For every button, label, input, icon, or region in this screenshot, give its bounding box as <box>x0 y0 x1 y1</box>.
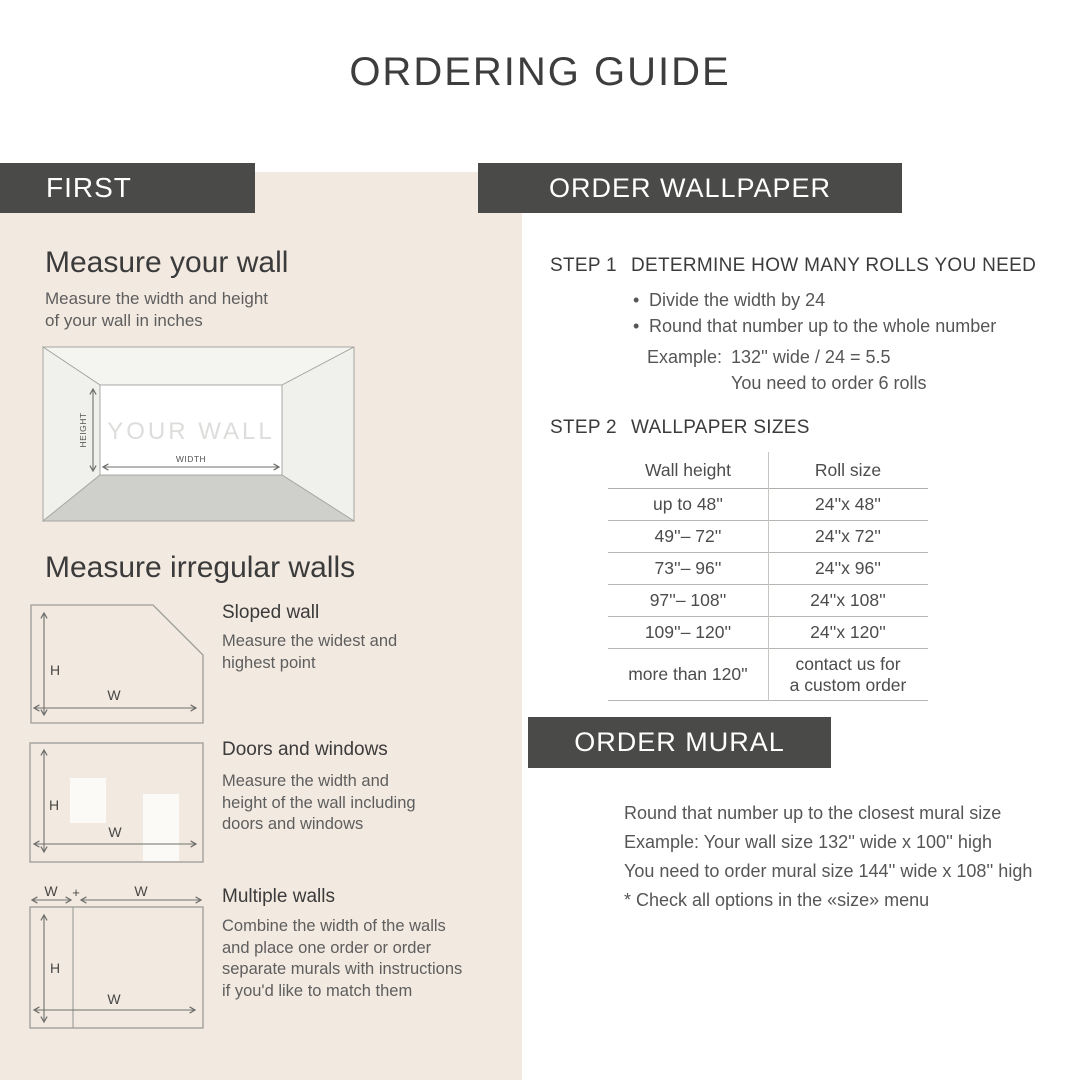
mural-line: * Check all options in the «size» menu <box>624 886 1032 915</box>
order-wallpaper-label: ORDER WALLPAPER <box>549 173 831 204</box>
multiple-walls-body: Combine the width of the walls and place… <box>222 916 462 1002</box>
first-section-header: FIRST <box>0 163 255 213</box>
step1-row: STEP 1 DETERMINE HOW MANY ROLLS YOU NEED <box>550 255 1036 277</box>
bullet-text: Divide the width by 24 <box>649 290 825 310</box>
roll-size-cell: 24''x 108'' <box>768 585 928 616</box>
irregular-walls-heading: Measure irregular walls <box>45 551 355 585</box>
doors-windows-diagram: H W <box>28 740 206 864</box>
wall-height-cell: up to 48'' <box>608 489 768 520</box>
w-label: W <box>108 824 122 840</box>
plus-sign: + <box>72 885 80 900</box>
roll-size-cell: 24''x 72'' <box>768 521 928 552</box>
wall-height-cell: more than 120'' <box>608 649 768 700</box>
measure-wall-heading: Measure your wall <box>45 246 288 280</box>
h-label: H <box>49 797 59 813</box>
wall-height-cell: 109''– 120'' <box>608 617 768 648</box>
column-header: Roll size <box>768 452 928 488</box>
page-title: ORDERING GUIDE <box>0 50 1080 95</box>
step2-title: WALLPAPER SIZES <box>631 417 810 439</box>
roll-size-cell: contact us for a custom order <box>768 649 928 700</box>
wall-height-cell: 49''– 72'' <box>608 521 768 552</box>
wall-diagram: YOUR WALL HEIGHT WIDTH <box>42 346 355 522</box>
sloped-wall-body: Measure the widest and highest point <box>222 631 397 674</box>
w-label-small: W <box>44 883 58 899</box>
example-label: Example: <box>647 344 731 396</box>
w-label: W <box>107 687 121 703</box>
sloped-wall-diagram: H W <box>28 602 208 728</box>
doors-windows-title: Doors and windows <box>222 739 388 761</box>
your-wall-label: YOUR WALL <box>107 418 274 445</box>
roll-size-cell: 24''x 96'' <box>768 553 928 584</box>
example-line2: You need to order 6 rolls <box>731 370 926 396</box>
step2-row: STEP 2 WALLPAPER SIZES <box>550 417 810 439</box>
doors-windows-body: Measure the width and height of the wall… <box>222 771 416 836</box>
h-label: H <box>50 662 60 678</box>
h-label: H <box>50 960 60 976</box>
mural-line: Round that number up to the closest mura… <box>624 799 1032 828</box>
step1-example: Example: 132'' wide / 24 = 5.5 You need … <box>647 344 926 396</box>
mural-line: You need to order mural size 144'' wide … <box>624 857 1032 886</box>
roll-size-cell: 24''x 120'' <box>768 617 928 648</box>
step2-label: STEP 2 <box>550 417 631 439</box>
ordering-guide-page: ORDERING GUIDE FIRST Measure your wall M… <box>0 0 1080 1080</box>
wallpaper-sizes-table: Wall height Roll size up to 48'' 24''x 4… <box>608 452 928 701</box>
bullet-text: Round that number up to the whole number <box>649 316 996 336</box>
step1-bullets: •Divide the width by 24 •Round that numb… <box>633 287 996 339</box>
column-header: Wall height <box>608 452 768 488</box>
wall-height-cell: 73''– 96'' <box>608 553 768 584</box>
width-label: WIDTH <box>176 454 206 464</box>
bullet-line: •Round that number up to the whole numbe… <box>633 313 996 339</box>
bullet-line: •Divide the width by 24 <box>633 287 996 313</box>
w-label-bottom: W <box>107 991 121 1007</box>
window-shape <box>70 778 106 823</box>
height-label: HEIGHT <box>78 412 88 447</box>
roll-size-cell: 24''x 48'' <box>768 489 928 520</box>
table-column-divider <box>768 452 769 701</box>
order-wallpaper-header: ORDER WALLPAPER <box>478 163 902 213</box>
example-line1: 132'' wide / 24 = 5.5 <box>731 344 926 370</box>
mural-line: Example: Your wall size 132'' wide x 100… <box>624 828 1032 857</box>
door-shape <box>143 794 179 861</box>
bullet-icon: • <box>633 313 649 339</box>
w-label-large: W <box>134 883 148 899</box>
step1-label: STEP 1 <box>550 255 631 277</box>
step1-title: DETERMINE HOW MANY ROLLS YOU NEED <box>631 255 1036 277</box>
wall-height-cell: 97''– 108'' <box>608 585 768 616</box>
first-section-label: FIRST <box>0 172 132 204</box>
multiple-walls-title: Multiple walls <box>222 886 335 908</box>
order-mural-header: ORDER MURAL <box>528 717 831 768</box>
multiple-walls-diagram: W + W H W <box>28 882 208 1032</box>
sloped-wall-title: Sloped wall <box>222 602 319 624</box>
order-mural-label: ORDER MURAL <box>574 727 785 758</box>
mural-instructions: Round that number up to the closest mura… <box>624 799 1032 915</box>
measure-wall-body: Measure the width and height of your wal… <box>45 288 268 332</box>
bullet-icon: • <box>633 287 649 313</box>
